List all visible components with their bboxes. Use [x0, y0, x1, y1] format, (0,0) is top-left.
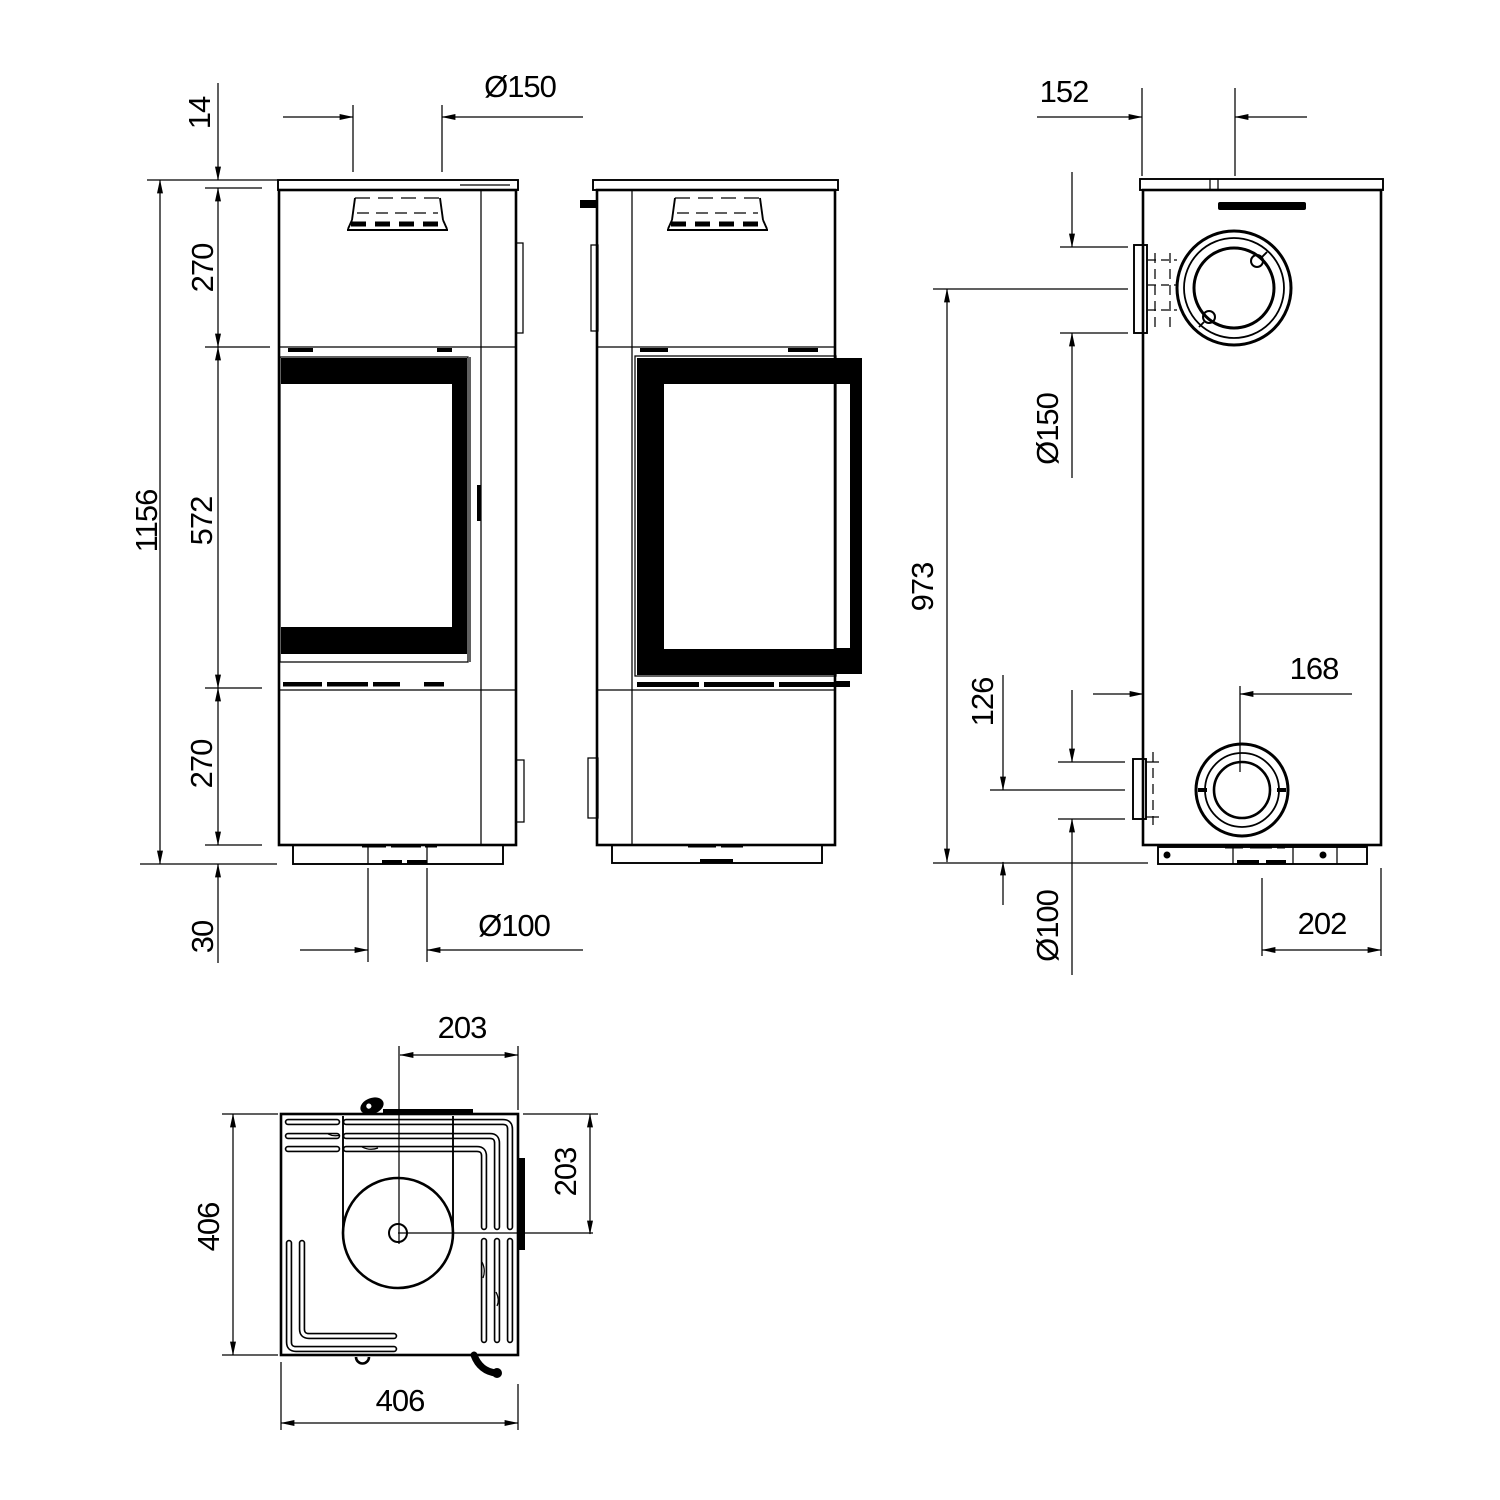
- rear-top-plate: [1140, 179, 1383, 190]
- dim-rear-outlet-diameter: Ø100: [1030, 889, 1065, 962]
- front-plinth: [293, 844, 503, 864]
- dim-upper-section: 270: [185, 243, 220, 292]
- stove-dimension-drawing: 14 Ø150 270 1156 572 270 30 Ø100: [0, 0, 1500, 1500]
- dim-lower-section: 270: [184, 739, 219, 788]
- top-view: 203 203 406 406: [191, 1010, 598, 1430]
- side-top-plate: [593, 180, 838, 190]
- dim-top-width: 406: [376, 1383, 425, 1418]
- rear-plinth: [1158, 845, 1367, 864]
- dim-flue-diameter-front: Ø150: [484, 69, 557, 104]
- front-door-frame-right: [452, 358, 467, 654]
- dim-rear-outlet-center-height: 126: [965, 678, 1000, 727]
- rear-flue-outlet: [1177, 231, 1291, 345]
- dim-total-height: 1156: [129, 490, 164, 553]
- front-flue-collar: [347, 198, 448, 230]
- side-plinth: [612, 844, 822, 863]
- side-door: [635, 356, 836, 676]
- front-door-latch: [477, 485, 482, 521]
- top-front-edge-band: [383, 1109, 473, 1115]
- side-air-lever: [580, 200, 597, 208]
- dim-rear-flue-offset: 152: [1040, 74, 1089, 109]
- dim-floor-flue-diameter: Ø100: [478, 908, 551, 943]
- rear-body: [1143, 190, 1381, 845]
- dim-glass-section: 572: [184, 497, 219, 546]
- technical-drawing-page: 14 Ø150 270 1156 572 270 30 Ø100: [0, 0, 1500, 1500]
- side-flue-collar: [667, 198, 768, 230]
- rear-top-slot: [1218, 202, 1306, 210]
- side-body: [597, 190, 835, 845]
- front-view: 14 Ø150 270 1156 572 270 30 Ø100: [129, 69, 583, 963]
- rear-side-grille: [1134, 245, 1177, 333]
- side-view: [580, 180, 862, 863]
- rear-lower-slit: [1133, 752, 1159, 825]
- side-door-handle: [835, 358, 862, 674]
- front-door-frame-top: [281, 358, 467, 384]
- dim-rear-outlet-offset: 168: [1290, 651, 1339, 686]
- front-door-frame-bottom: [281, 627, 467, 654]
- top-door-handle: [474, 1355, 502, 1378]
- dim-rear-flue-center-height: 973: [905, 563, 940, 612]
- dim-top-plate-thickness: 14: [182, 96, 217, 129]
- rear-view: 152 Ø150 973 126 168 Ø100 202: [905, 74, 1383, 975]
- top-right-slit: [518, 1158, 525, 1250]
- rear-bottom-outlet: [1196, 744, 1288, 836]
- dim-top-depth: 406: [191, 1203, 226, 1252]
- dim-top-flue-from-top: 203: [548, 1148, 583, 1197]
- top-bottom-hook: [356, 1357, 369, 1364]
- dim-rear-flue-diameter: Ø150: [1030, 392, 1065, 465]
- dim-rear-base-offset: 202: [1298, 906, 1347, 941]
- front-door: [280, 357, 482, 662]
- side-door-pivot: [835, 681, 850, 687]
- dim-top-flue-from-right: 203: [438, 1010, 487, 1045]
- dim-plinth-height: 30: [185, 920, 220, 953]
